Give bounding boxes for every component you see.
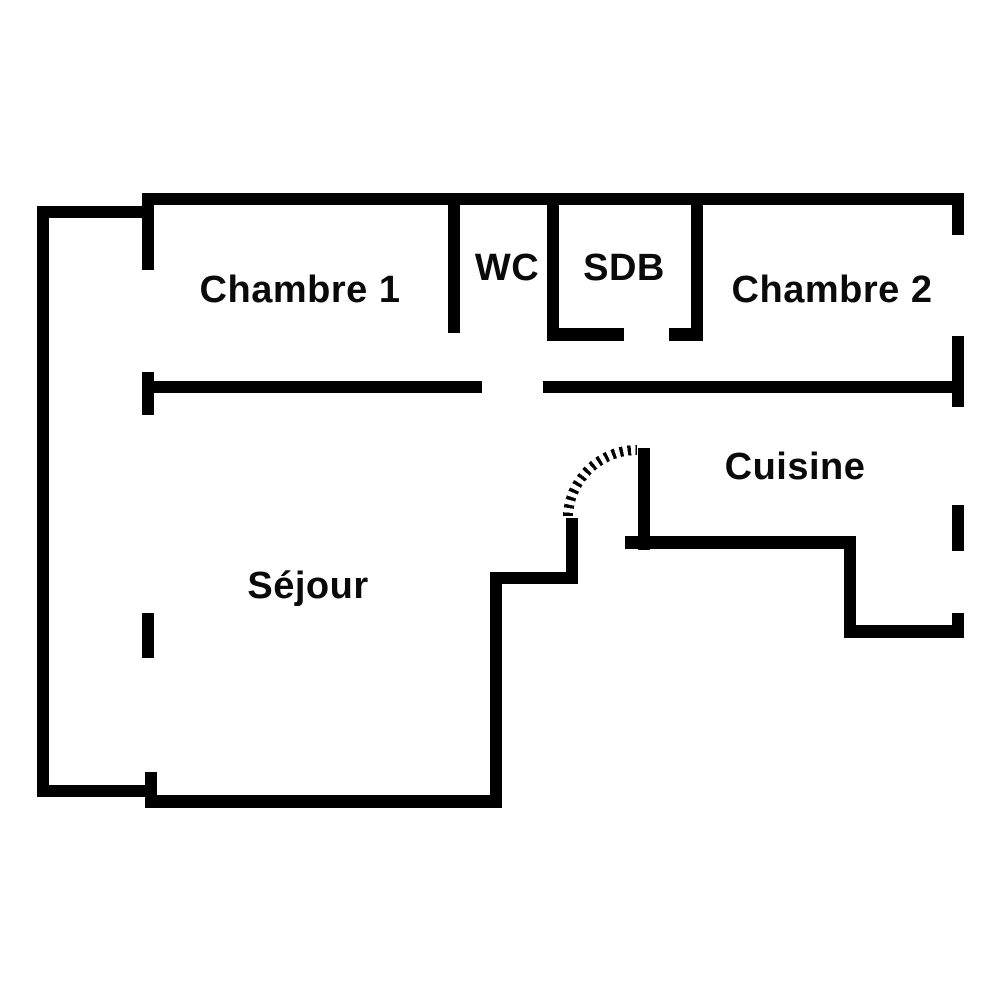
wall-right-segment-1 (952, 193, 964, 235)
wall-window-tick-upper (142, 372, 154, 415)
wall-outer-top-connector (37, 206, 143, 218)
door-swing-arc (568, 450, 637, 516)
wall-wc-left (448, 205, 460, 333)
wall-outer-bottom-connector (37, 785, 145, 797)
wall-right-segment-3 (952, 505, 964, 551)
wall-corridor-right (543, 381, 964, 393)
wall-bottom-right (844, 625, 964, 638)
wall-sejour-bottom (145, 795, 502, 808)
wall-cuisine-bottom (625, 536, 856, 549)
wall-top (142, 193, 964, 205)
floor-plan: Chambre 1 WC SDB Chambre 2 Cuisine Séjou… (0, 0, 1000, 1000)
room-label-sdb: SDB (583, 249, 665, 287)
wall-chambre2-left (691, 205, 703, 341)
floor-plan-drawing (0, 0, 1000, 1000)
room-label-chambre-1: Chambre 1 (200, 271, 401, 309)
wall-sejour-step (490, 572, 578, 584)
wall-sdb-bottom-left (547, 328, 624, 341)
wall-door-jamb (638, 448, 650, 550)
wall-right-segment-2 (952, 336, 964, 407)
room-label-cuisine: Cuisine (725, 448, 866, 486)
wall-sdb-left (547, 205, 559, 341)
wall-window-tick-lower (142, 613, 154, 658)
wall-corridor-left (142, 381, 482, 393)
room-label-chambre-2: Chambre 2 (732, 271, 933, 309)
wall-outer-left (37, 206, 49, 797)
room-label-sejour: Séjour (247, 567, 368, 605)
wall-sejour-right (490, 572, 502, 808)
wall-door-stub (566, 518, 578, 584)
wall-chambre1-left (142, 193, 154, 270)
wall-cuisine-step (844, 536, 856, 638)
room-label-wc: WC (475, 249, 539, 287)
